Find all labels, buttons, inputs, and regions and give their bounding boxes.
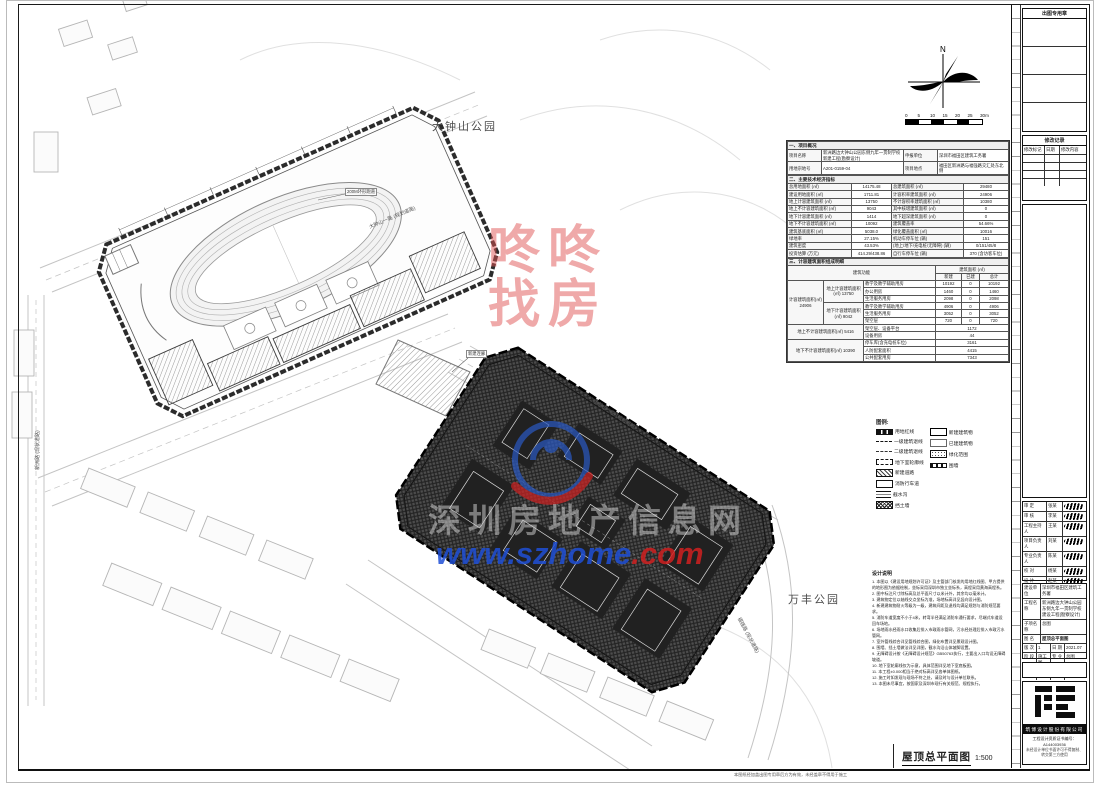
- sheet-frame: [18, 4, 1090, 770]
- frame-bottom-heavy-line: [18, 769, 1090, 771]
- drawing-sheet: 咚咚 找房 深圳房地产信息网 www.szhome.com 大钟山公园 万丰公园…: [0, 0, 1095, 788]
